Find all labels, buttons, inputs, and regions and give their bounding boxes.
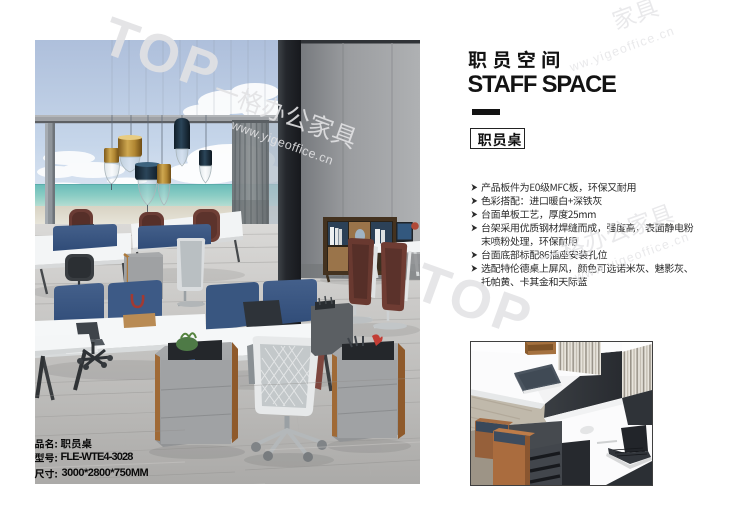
svg-text:ww.yigeoffice.cn: ww.yigeoffice.cn bbox=[567, 23, 677, 74]
svg-text:www.yigeoffice.cn: www.yigeoffice.cn bbox=[572, 230, 692, 285]
svg-text:www.yigeoffice.cn: www.yigeoffice.cn bbox=[228, 118, 335, 168]
svg-text:TOP: TOP bbox=[95, 6, 230, 104]
svg-text:TOP: TOP bbox=[407, 252, 542, 350]
